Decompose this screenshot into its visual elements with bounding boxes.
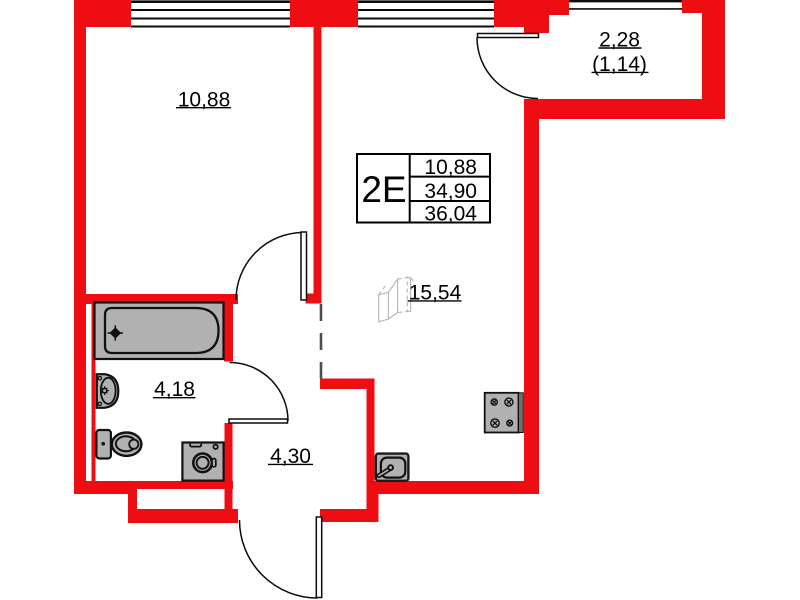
svg-text:2E: 2E	[361, 169, 406, 210]
svg-text:34,90: 34,90	[424, 180, 477, 203]
svg-text:10,88: 10,88	[424, 156, 477, 179]
svg-text:36,04: 36,04	[424, 202, 477, 225]
